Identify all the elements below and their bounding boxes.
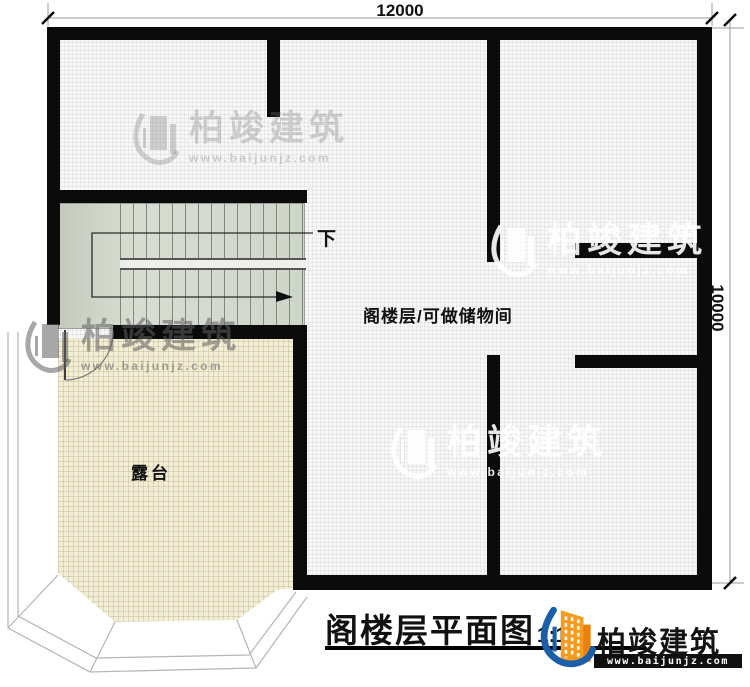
baijun-logo-icon — [538, 604, 598, 670]
dimension-lines — [48, 3, 744, 583]
brand-logo: 柏竣建筑 www.baijunjz.com — [538, 602, 743, 672]
drawing-title-text: 阁楼层平面图 — [325, 612, 535, 649]
plan-linework — [0, 0, 750, 687]
stairs-walk-line — [92, 233, 313, 302]
brand-url: www.baijunjz.com — [607, 656, 729, 667]
floor-plan-canvas: 柏竣建筑 www.baijunjz.com 柏竣建筑 www.baijunjz.… — [0, 0, 750, 687]
dimension-ticks — [42, 12, 736, 589]
brand-url-bar: www.baijunjz.com — [594, 654, 742, 668]
dimension-right-label: 10000 — [707, 278, 727, 338]
stairs-direction-arrow — [276, 291, 293, 302]
terrace-door — [65, 330, 113, 380]
terrace-door-arc — [65, 332, 113, 380]
dimension-top-label: 12000 — [330, 1, 470, 21]
attic-room-label: 阁楼层/可做储物间 — [363, 302, 513, 327]
terrace-label: 露台 — [131, 459, 171, 484]
eaves-outline — [8, 332, 307, 672]
stairs-down-label: 下 — [317, 224, 336, 251]
